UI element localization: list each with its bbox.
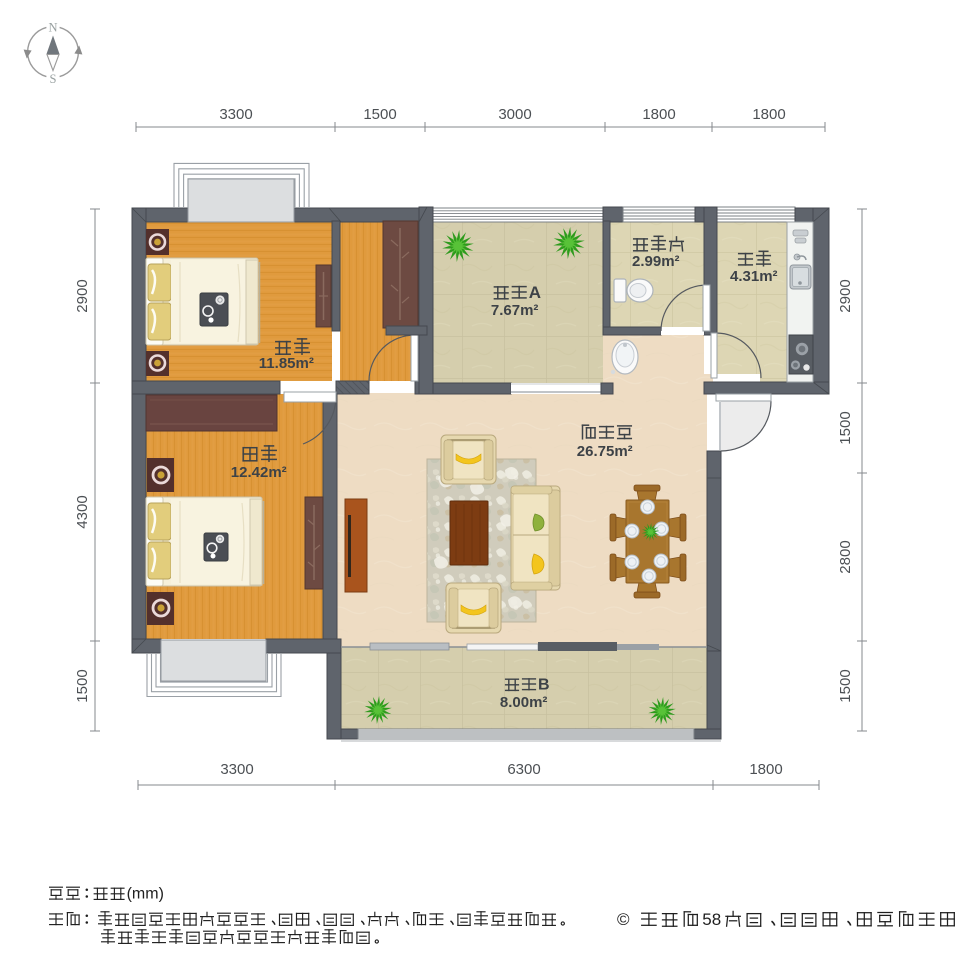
svg-text:A: A: [529, 283, 541, 302]
svg-text:©: ©: [617, 910, 634, 929]
svg-text:1500: 1500: [837, 669, 854, 702]
svg-text:3300: 3300: [220, 761, 253, 778]
svg-text:(mm): (mm): [127, 886, 164, 903]
svg-text:1800: 1800: [642, 106, 675, 123]
svg-text:6300: 6300: [507, 761, 540, 778]
svg-text:4.31m²: 4.31m²: [730, 268, 778, 285]
svg-text:58: 58: [702, 910, 721, 929]
svg-text:1800: 1800: [749, 761, 782, 778]
svg-text:B: B: [538, 677, 550, 694]
svg-text:2.99m²: 2.99m²: [632, 253, 680, 270]
svg-text:11.85m²: 11.85m²: [259, 355, 314, 372]
svg-text:1500: 1500: [74, 669, 91, 702]
svg-text:1800: 1800: [752, 106, 785, 123]
svg-text:12.42m²: 12.42m²: [231, 464, 287, 481]
svg-text:2900: 2900: [74, 279, 91, 312]
svg-text:4300: 4300: [74, 495, 91, 528]
svg-text:26.75m²: 26.75m²: [577, 443, 633, 460]
svg-text:8.00m²: 8.00m²: [500, 694, 548, 711]
svg-text:1500: 1500: [837, 411, 854, 444]
svg-text:7.67m²: 7.67m²: [491, 302, 539, 319]
svg-text:2800: 2800: [837, 540, 854, 573]
svg-text:S: S: [50, 72, 57, 86]
svg-text:N: N: [48, 21, 57, 35]
svg-text:3300: 3300: [219, 106, 252, 123]
svg-text:3000: 3000: [498, 106, 531, 123]
svg-text:1500: 1500: [363, 106, 396, 123]
svg-text:2900: 2900: [837, 279, 854, 312]
